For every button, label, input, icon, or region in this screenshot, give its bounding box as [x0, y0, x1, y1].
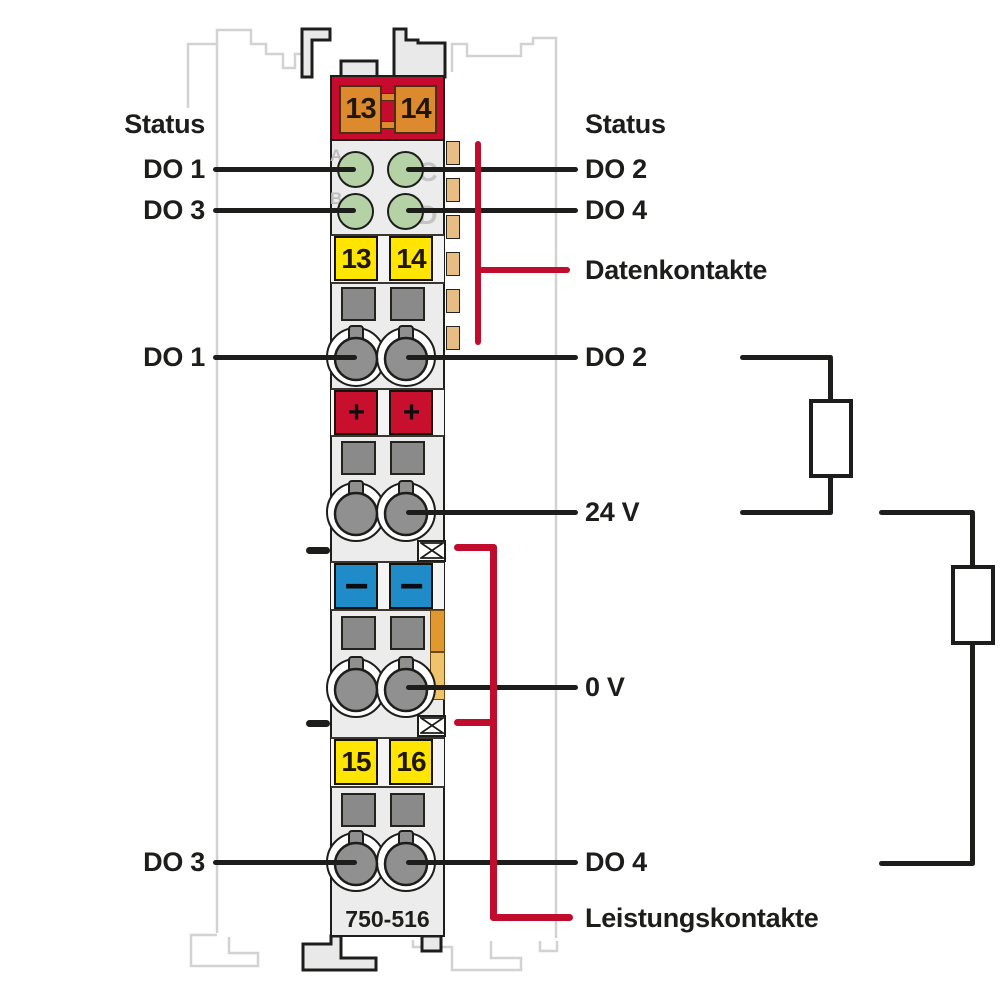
line-load1-lead-top — [828, 357, 833, 403]
plus-symbol: + — [403, 396, 420, 430]
label-do3: DO 3 — [40, 846, 205, 878]
test-contact — [390, 441, 425, 475]
minus-clamp-left: − — [334, 563, 378, 609]
line-load2-lead-top — [970, 512, 975, 569]
minus-symbol: − — [344, 562, 368, 610]
datenkontakte-bracket — [475, 141, 481, 345]
line-load1-lead-bottom — [828, 474, 833, 515]
label-status-left: Status — [40, 108, 205, 140]
label-datenkontakte: Datenkontakte — [585, 254, 767, 286]
line-do3 — [213, 860, 357, 865]
terminal-screw-0v-right — [385, 669, 427, 711]
terminal-clamp-16-label: 16 — [396, 746, 425, 778]
terminal-clamp-13-label: 13 — [341, 243, 370, 275]
terminal-clamp-13: 13 — [334, 236, 378, 281]
label-do2: DO 2 — [585, 341, 647, 373]
label-do1: DO 1 — [40, 341, 205, 373]
plus-clamp-left: + — [334, 390, 378, 435]
bottom-mounting-foot — [303, 936, 376, 970]
minus-symbol: − — [399, 562, 423, 610]
data-contact — [446, 252, 460, 276]
power-jumper-contact — [430, 610, 445, 652]
datenkontakte-bracket-branch — [475, 267, 570, 273]
line-do1 — [213, 355, 357, 360]
test-contact — [341, 287, 376, 321]
part-number: 750-516 — [330, 906, 445, 933]
line-24v — [406, 510, 578, 515]
data-contact — [446, 178, 460, 202]
label-status-right: Status — [585, 108, 666, 140]
plus-clamp-right: + — [389, 390, 433, 435]
line-load2-bottom — [879, 861, 975, 866]
line-do2-status — [406, 167, 578, 172]
line-do1-status — [213, 167, 356, 172]
line-do2 — [406, 355, 578, 360]
header-clamp-14: 14 — [394, 85, 437, 134]
label-leistungskontakte: Leistungskontakte — [585, 902, 818, 934]
plus-symbol: + — [348, 396, 365, 430]
terminal-screw-24v-left — [335, 493, 377, 535]
power-contact-tick — [306, 547, 330, 554]
label-0v: 0 V — [585, 671, 625, 703]
label-do1-status: DO 1 — [40, 153, 205, 185]
load-resistor-1 — [809, 399, 853, 478]
data-contact — [446, 289, 460, 313]
terminal-screw-0v-left — [335, 669, 377, 711]
leistungskontakte-bracket-bottom — [490, 914, 573, 921]
terminal-clamp-14: 14 — [389, 236, 433, 281]
line-load2-lead-bottom — [970, 643, 975, 866]
top-mounting-hook — [302, 29, 330, 77]
label-do3-status: DO 3 — [40, 194, 205, 226]
line-do2-circuit — [740, 355, 833, 360]
test-contact — [341, 441, 376, 475]
test-contact — [390, 287, 425, 321]
data-contact — [446, 215, 460, 239]
label-24v: 24 V — [585, 496, 639, 528]
load-resistor-2 — [951, 565, 995, 645]
line-do3-status — [213, 208, 356, 213]
test-contact — [390, 616, 425, 650]
terminal-clamp-14-label: 14 — [396, 243, 425, 275]
leistungskontakte-bracket — [490, 544, 497, 921]
terminal-clamp-15: 15 — [334, 739, 378, 785]
label-do4: DO 4 — [585, 846, 647, 878]
header-clamp-13-label: 13 — [345, 93, 375, 126]
data-contact — [446, 326, 460, 350]
header-clamp-bridge — [381, 93, 395, 101]
header-clamp-14-label: 14 — [400, 93, 430, 126]
wiring-diagram-750-516: 13 14 A B C D 13 14 + + — [0, 0, 1006, 1007]
header-clamp-bridge — [381, 121, 395, 129]
bowtie-icon — [420, 542, 444, 559]
line-load2-top — [879, 510, 975, 515]
test-contact — [341, 616, 376, 650]
data-contact — [446, 141, 460, 165]
leistungskontakte-bracket-stub — [454, 719, 497, 726]
terminal-clamp-16: 16 — [389, 739, 433, 785]
line-do4-status — [406, 208, 578, 213]
power-contact-tick — [306, 720, 330, 727]
label-do2-status: DO 2 — [585, 153, 647, 185]
line-24v-circuit — [740, 510, 833, 515]
power-contact-symbol — [417, 540, 446, 562]
test-contact — [390, 793, 425, 827]
minus-clamp-right: − — [389, 563, 433, 609]
terminal-clamp-15-label: 15 — [341, 746, 370, 778]
header-clamp-13: 13 — [339, 85, 382, 134]
test-contact — [341, 793, 376, 827]
label-do4-status: DO 4 — [585, 194, 647, 226]
